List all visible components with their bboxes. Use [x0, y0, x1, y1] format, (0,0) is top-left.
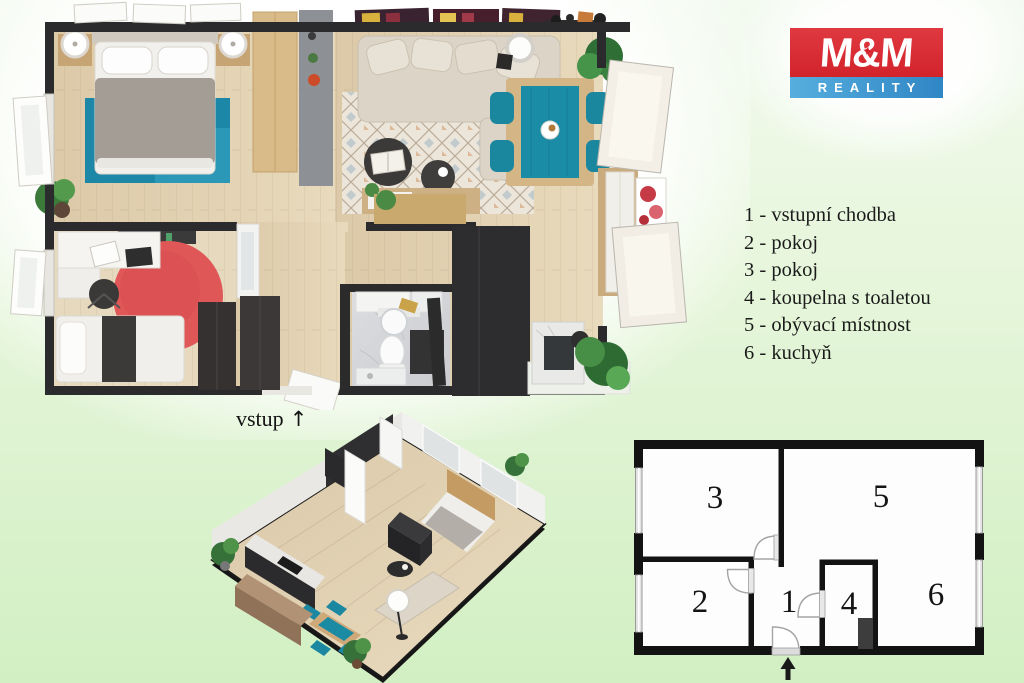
pillow	[158, 47, 208, 74]
tall-cabinet-gray	[299, 10, 333, 186]
floorplan-iso-view	[195, 412, 575, 683]
windows-top	[74, 2, 241, 24]
wall-room-divider	[45, 222, 237, 231]
wall-2-1	[749, 593, 755, 655]
wall-left	[45, 22, 54, 395]
dining-chair	[490, 140, 514, 172]
dining-chair	[490, 92, 514, 124]
shower-tray	[356, 368, 406, 385]
logo-top-band: M&M ✦	[790, 28, 943, 77]
window-sash	[74, 2, 127, 23]
entrance-arrow-icon	[781, 657, 796, 680]
wall-right-top	[597, 22, 606, 68]
wall-3-5	[779, 443, 785, 567]
legend-item: 2 - pokoj	[744, 230, 931, 258]
entrance-threshold	[772, 648, 800, 655]
room-legend: 1 - vstupní chodba 2 - pokoj 3 - pokoj 4…	[744, 202, 931, 367]
iso-mirror-panel	[345, 450, 365, 524]
door-leaf	[820, 591, 826, 618]
floorplan-schematic: 3 5 2 1 4 6	[620, 430, 1024, 683]
wall-4-right	[873, 560, 879, 655]
sink	[381, 309, 407, 335]
sofa-pillow	[410, 37, 454, 72]
room-number-1: 1	[781, 584, 798, 620]
pillow	[60, 322, 86, 374]
shaft-box	[858, 618, 873, 649]
legend-item: 5 - obývací místnost	[744, 312, 931, 340]
room-number-6: 6	[928, 577, 945, 613]
legend-item: 1 - vstupní chodba	[744, 202, 931, 230]
iso-floor-lamp	[387, 590, 409, 612]
bathroom-wall-left	[340, 284, 350, 392]
floorplan-top-view	[0, 0, 700, 410]
bed-blanket	[95, 78, 215, 164]
legend-item: 6 - kuchyň	[744, 340, 931, 368]
room-number-5: 5	[873, 479, 890, 515]
wall-top	[45, 22, 630, 32]
kitchen-sink	[544, 336, 574, 370]
window-sash	[133, 4, 186, 24]
page: M&M ✦ REALITY 1 - vstupní chodba 2 - pok…	[0, 0, 1024, 683]
logo-bottom-band: REALITY	[790, 77, 943, 98]
legend-item: 4 - koupelna s toaletou	[744, 285, 931, 313]
right-wall-zone	[597, 60, 686, 328]
kitchen-tall-unit	[452, 226, 530, 396]
bed-runner	[102, 316, 136, 382]
legend-item: 3 - pokoj	[744, 257, 931, 285]
door-leaf	[749, 569, 755, 594]
room-number-3: 3	[707, 480, 724, 516]
laptop	[125, 247, 153, 268]
room-number-4: 4	[841, 586, 858, 622]
wall-2-1	[749, 557, 755, 569]
schematic-interior	[637, 443, 981, 655]
logo-star-icon: ✦	[860, 45, 873, 60]
wall-4-left	[820, 617, 826, 655]
speaker	[496, 53, 513, 70]
mirror	[241, 232, 254, 290]
plant	[376, 190, 396, 210]
door-leaf	[774, 535, 779, 560]
logo-subtitle: REALITY	[811, 81, 923, 94]
wall-3-2	[637, 557, 752, 563]
bathroom-wall-top	[340, 284, 456, 292]
room-number-2: 2	[692, 584, 709, 620]
iso-coffee-table	[387, 561, 413, 577]
pillow	[102, 47, 152, 74]
toilet	[380, 336, 404, 368]
mm-reality-logo: M&M ✦ REALITY	[790, 28, 943, 98]
window-sash	[190, 3, 241, 22]
wall-4-top	[820, 560, 878, 566]
